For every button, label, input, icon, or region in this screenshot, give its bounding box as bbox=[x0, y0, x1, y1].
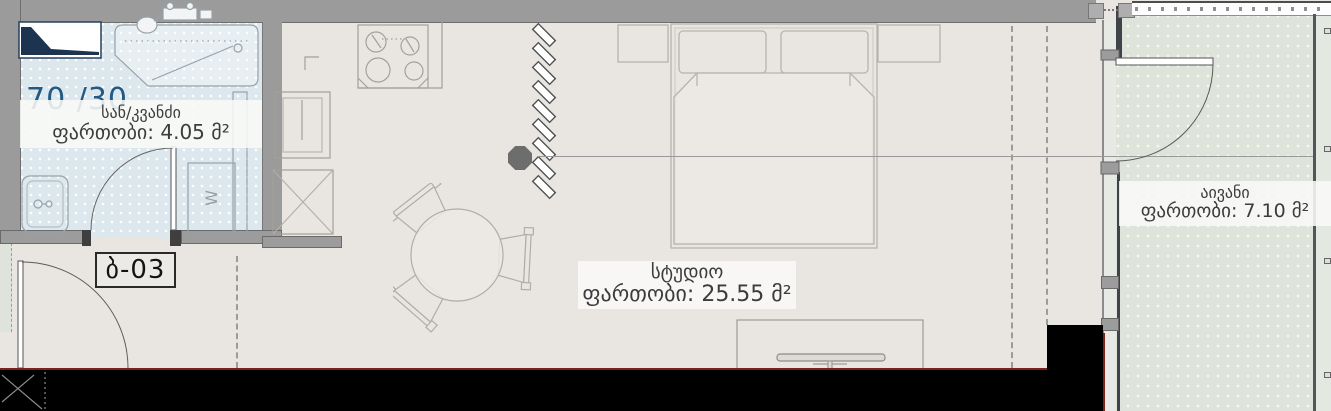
dashed-line-studio-1 bbox=[1011, 26, 1013, 368]
boundary-line-vertical bbox=[1103, 333, 1105, 411]
shower-mixer bbox=[163, 8, 197, 20]
pillow-left bbox=[679, 31, 766, 73]
balcony-door bbox=[1100, 48, 1235, 180]
dashed-line-studio-2 bbox=[1046, 26, 1048, 325]
bathroom-door-swing bbox=[91, 148, 173, 230]
partition-cap-1 bbox=[1101, 276, 1119, 289]
right-structural-block bbox=[1047, 325, 1103, 411]
balcony-door-post-bottom bbox=[1101, 162, 1119, 174]
slat-partition bbox=[524, 22, 568, 208]
studio-label: სტუდიო ფართობი: 25.55 მ² bbox=[578, 261, 796, 309]
window-connector-left bbox=[1088, 3, 1104, 19]
faucet bbox=[34, 200, 42, 208]
bed-group bbox=[615, 22, 945, 252]
partition-cap-2 bbox=[1101, 318, 1119, 331]
nightstand-right bbox=[878, 25, 940, 62]
bathroom-area: ფართობი: 4.05 მ² bbox=[52, 121, 229, 143]
unit-number-box: ბ-03 bbox=[95, 252, 176, 288]
bottom-structural-wall bbox=[0, 370, 1103, 411]
shower-head bbox=[137, 17, 157, 33]
shower-tray bbox=[115, 25, 258, 86]
window-connector-dots bbox=[1104, 9, 1118, 11]
tv-screen bbox=[777, 354, 885, 361]
edge-marker-2 bbox=[1324, 146, 1331, 152]
studio-name: სტუდიო bbox=[651, 263, 724, 283]
studio-area: ფართობი: 25.55 მ² bbox=[582, 283, 791, 307]
stove bbox=[358, 25, 428, 88]
balcony-area: ფართობი: 7.10 მ² bbox=[1141, 201, 1310, 222]
tv-console bbox=[735, 318, 925, 371]
unit-number: ბ-03 bbox=[106, 255, 166, 285]
stair-hatch bbox=[0, 372, 120, 411]
washing-machine-label: W bbox=[202, 190, 221, 206]
blanket bbox=[674, 73, 874, 244]
table-top bbox=[411, 209, 503, 301]
edge-marker-3 bbox=[1324, 258, 1331, 264]
pillow-right bbox=[781, 31, 868, 73]
counter-edge bbox=[358, 22, 442, 88]
dining-table-group bbox=[393, 183, 548, 338]
bathroom-name: სან/კვანძი bbox=[101, 105, 181, 122]
brand-logo bbox=[18, 21, 102, 59]
bathroom-label: სან/კვანძი ფართობი: 4.05 მ² bbox=[20, 100, 262, 148]
balcony-name: აივანი bbox=[1200, 185, 1249, 202]
entry-door-leaf bbox=[18, 261, 23, 368]
edge-marker-1 bbox=[1324, 28, 1331, 34]
floor-plan: W bbox=[0, 0, 1331, 411]
burner-3 bbox=[366, 58, 390, 82]
railing-balusters bbox=[1135, 7, 1329, 11]
burner-4 bbox=[405, 62, 423, 80]
edge-marker-4 bbox=[1324, 372, 1331, 378]
counter-corner-mark bbox=[305, 57, 319, 70]
boundary-line-horizontal bbox=[0, 368, 1047, 370]
balcony-railing bbox=[1132, 1, 1331, 16]
balcony-door-leaf bbox=[1116, 58, 1213, 65]
nightstand-left bbox=[618, 25, 668, 62]
dashed-line-entry bbox=[236, 256, 238, 368]
balcony-door-swing bbox=[1116, 64, 1213, 161]
bathroom-door-leaf bbox=[171, 147, 176, 230]
bathroom-door-post-right bbox=[170, 230, 181, 246]
balcony-label: აივანი ფართობი: 7.10 მ² bbox=[1119, 181, 1331, 226]
burner-1 bbox=[366, 32, 386, 52]
